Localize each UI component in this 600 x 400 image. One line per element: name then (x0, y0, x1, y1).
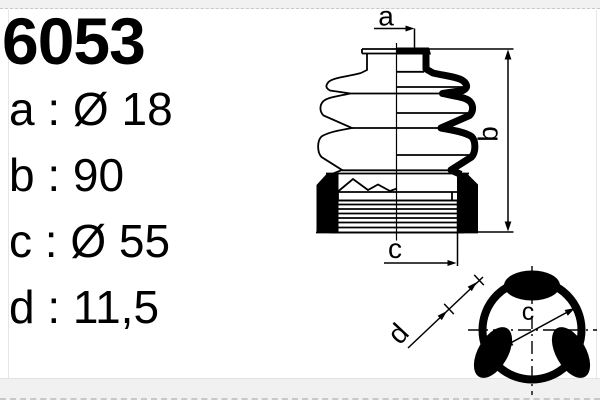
dim-label-d: d (381, 317, 414, 350)
dim-label-a: a (378, 1, 394, 32)
trilobe-section-view: c (466, 266, 598, 395)
break-zigzag-line (338, 179, 397, 192)
arrowhead (565, 308, 575, 316)
lobe-top (504, 271, 560, 301)
dimension-a: a (374, 1, 415, 50)
dimension-d: d (381, 275, 483, 350)
arrowhead (406, 26, 415, 32)
arrowhead (448, 260, 457, 266)
clamp-end-blocks (317, 174, 479, 233)
clamp-right-block (457, 174, 478, 233)
arrowhead-up (505, 50, 512, 60)
dim-label-b: b (473, 126, 504, 142)
clamp-left-block (317, 174, 339, 233)
section-diameter-label: c (522, 298, 535, 326)
clamp-cap-band (338, 192, 458, 201)
arrowhead-down (505, 222, 512, 232)
technical-drawing: a b c c d (0, 0, 600, 400)
dim-label-c: c (388, 233, 402, 264)
